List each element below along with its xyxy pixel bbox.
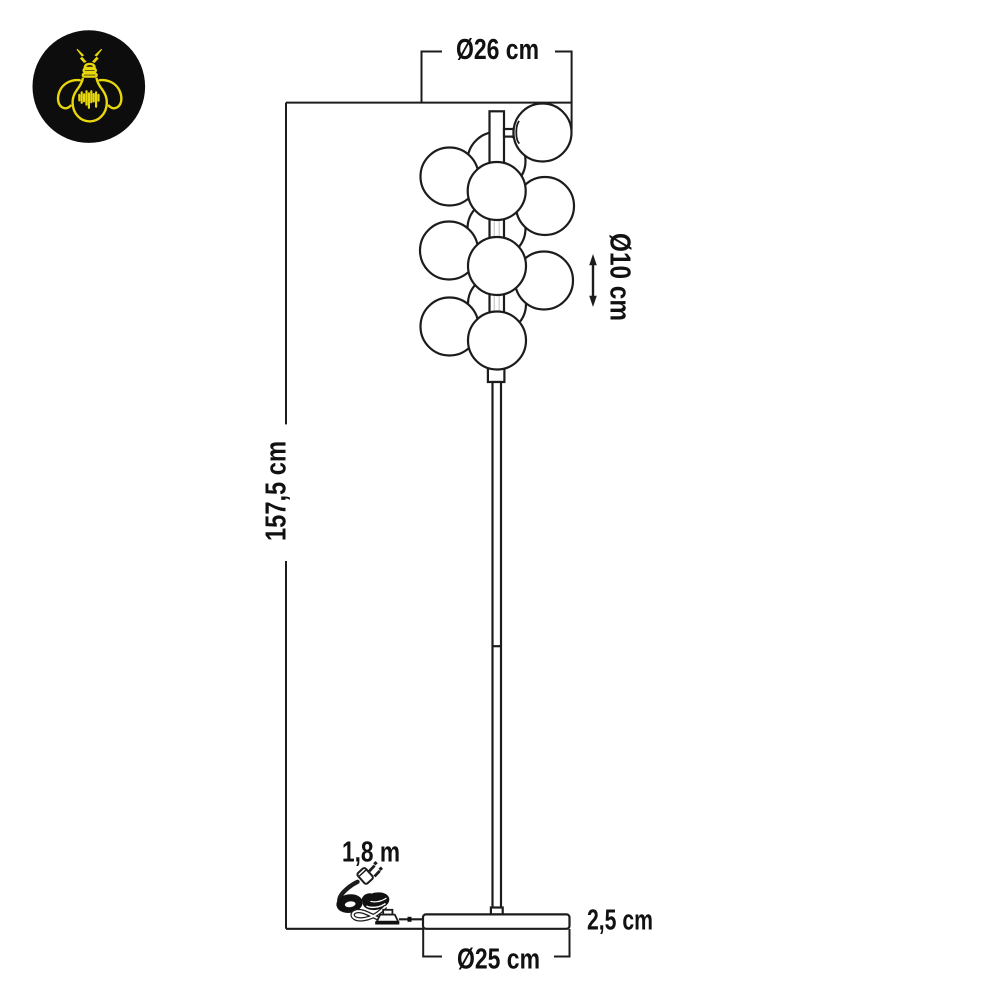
svg-text:1,8 m: 1,8 m	[342, 837, 400, 869]
svg-text:Ø25 cm: Ø25 cm	[457, 944, 540, 976]
svg-text:2,5 cm: 2,5 cm	[587, 905, 653, 937]
svg-text:Ø10 cm: Ø10 cm	[604, 233, 636, 321]
svg-text:157,5 cm: 157,5 cm	[261, 441, 293, 541]
svg-text:Ø26 cm: Ø26 cm	[456, 34, 539, 66]
